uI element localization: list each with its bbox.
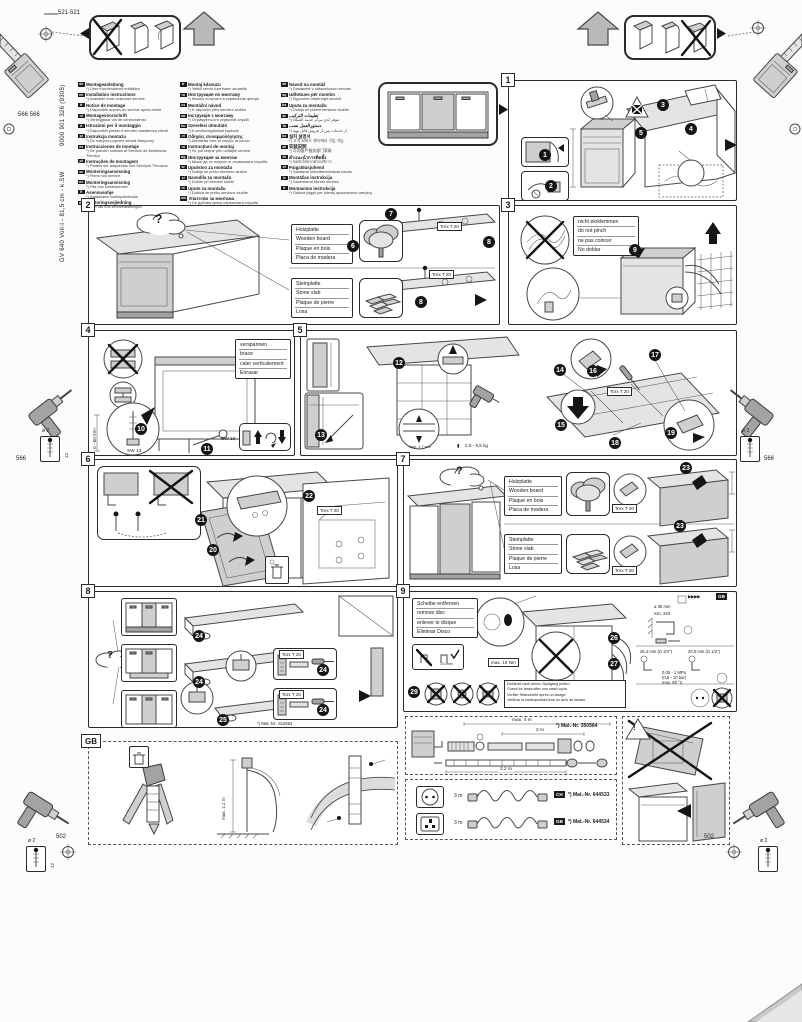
binding-hole-icon [788, 122, 802, 136]
drill-depth-label: 12 [64, 453, 69, 458]
language-code-badge: pl [78, 134, 85, 138]
panel-number: 1 [501, 73, 515, 87]
drill-diameter-label: ø 2 [42, 428, 49, 434]
flow-label: 10 l/min [440, 662, 453, 666]
language-note: *) Disponibili presso il servizio assist… [78, 129, 177, 133]
language-list-col1: deMontageanleitung *) Über Kundendienst … [78, 82, 177, 211]
panel-weight-icon: ▮ [457, 443, 460, 449]
step-badge: 27 [608, 658, 620, 670]
cord-length-label: 3 m [454, 820, 462, 826]
language-entry: slNavodila za montažo *) Dobite pri serv… [180, 175, 279, 184]
panel-weight-label: 2,5 - 6,5 kg [465, 443, 488, 448]
worktop-types-icon [91, 17, 179, 58]
cord-length-label: 3 m [454, 793, 462, 799]
language-code-badge: et [281, 165, 288, 169]
step-badge: 21 [195, 514, 207, 526]
question-mark: ? [456, 465, 463, 477]
step-panel-1: 1 [508, 80, 737, 201]
language-note: *) Се добива преку сервисната служба [180, 201, 279, 205]
step-panel-6: 6 [88, 459, 398, 587]
see-gb-arrows-icon: ▶▶▶▶ [688, 594, 700, 600]
step-badge: 6 [347, 240, 359, 252]
worktop-types-icon [626, 17, 714, 58]
language-code-badge: el [180, 134, 187, 138]
panel-number: 4 [81, 323, 95, 337]
language-code-badge: nl [78, 114, 85, 118]
language-code-badge: de [78, 82, 85, 86]
power-cord-icon [468, 813, 548, 835]
dim-502-right: 502 [704, 834, 714, 840]
up-arrow-icon [184, 12, 224, 46]
language-code-badge: sv [78, 170, 85, 174]
language-entry: mkУпатство за монтажа *) Се добива преку… [180, 196, 279, 205]
language-note: *) Über Kundendienst erhältlich [78, 87, 177, 91]
panel-number: 5 [293, 323, 307, 337]
target-mark-icon [726, 844, 742, 860]
door-mount-illustration [623, 717, 731, 846]
step-badge: 23 [674, 520, 686, 532]
step-panel-9: 9 [403, 591, 737, 712]
pointer-right-icon [499, 104, 508, 115]
kitchen-overview-figure [378, 82, 498, 146]
language-note: *) Отримується в сервісній службі [180, 118, 279, 122]
door-adjust-pictogram [239, 423, 291, 451]
torx-label: Torx T 20 [612, 566, 637, 575]
torx-label: Torx T 20 [279, 690, 304, 699]
step-badge: 20 [207, 544, 219, 556]
screw-bit-icon [40, 436, 60, 462]
language-note: *) تتوفر لدى مركز خدمة العملاء [281, 118, 380, 122]
language-code-badge: hu [180, 124, 187, 128]
wrench-size-label: SW 10 [221, 437, 235, 442]
pointer-left-icon [80, 28, 89, 39]
worktop-warning-box-left [89, 15, 181, 60]
step-badge: 29 [408, 686, 420, 698]
step-badge: 24 [317, 704, 329, 716]
language-code-badge: sl [180, 176, 187, 180]
language-entry: frNotice de montage *) Disponible auprès… [78, 103, 177, 112]
language-note: *) Podem ser adquiridas nos Serviços Téc… [78, 164, 177, 168]
step-badge: 8 [483, 236, 495, 248]
step-badge: 7 [385, 208, 397, 220]
language-code-badge: fr [78, 103, 85, 107]
language-list-col3: skNávod na montáž *) Dostanete v zákazní… [281, 82, 380, 196]
language-entry: etPaigaldusjuhend *) Saadaval klienditee… [281, 165, 380, 174]
remove-disc-label: Scheibe entfernenremove disc enlever le … [412, 598, 478, 638]
language-code-badge: no [78, 180, 85, 184]
gap-label: max. 1,7 mm [401, 445, 439, 449]
socket-gb-icon [416, 813, 444, 835]
language-note: *) ขอรับได้จากฝ่ายบริการ [281, 160, 380, 164]
language-note: *) Yetkili servis üzerinden alınabilir [180, 87, 279, 91]
wood-icon [359, 220, 403, 262]
brace-label: verspannenbrace caler verticalementEnras… [235, 339, 291, 379]
dim-top-left: 521-521 [58, 10, 80, 16]
language-code-badge: zh [281, 145, 288, 149]
torx-label: Torx T 20 [279, 650, 304, 659]
language-entry: plInstrukcja montażu *) Do nabycia poprz… [78, 134, 177, 143]
language-code-badge: uk [180, 114, 187, 118]
language-entry: thคำแนะนำการติดตั้ง *) ขอรับได้จากฝ่ายบร… [281, 155, 380, 164]
step-badge: 24 [317, 664, 329, 676]
dim-566-left: 566 [16, 456, 26, 462]
language-code-badge: ru [180, 93, 187, 97]
panel-number: 9 [396, 584, 410, 598]
material-number-hose: *) Mat.-Nr. 350564 [556, 723, 597, 729]
language-entry: elΟδηγίες συναρμολόγησης *) Διατίθεται α… [180, 134, 279, 143]
power-cord-box: 3 m CH *) Mat.-Nr. 644533 3 m GB *) Mat.… [405, 779, 617, 840]
language-entry: roInstrucţiuni de montaj *) Se pot obţin… [180, 144, 279, 153]
step-badge: 15 [555, 419, 567, 431]
language-entry: ltMontavimo instrukcija *) Galima įsigyt… [281, 186, 380, 195]
language-note: *) Sigurohet nëpërmjet servisit [281, 97, 380, 101]
temperature-label: max. 60 °C [662, 680, 683, 685]
material-number-plinth: *) Mat.-Nr.: 612663 [257, 721, 292, 726]
language-code-badge: ar [281, 114, 288, 118]
language-entry: hrUpute za montažu *) Dobiva se preko se… [180, 186, 279, 195]
step-badge: 13 [315, 429, 327, 441]
dim-566-pair: 566 566 [18, 112, 40, 118]
language-entry: esInstrucciones de montaje *) Se pueden … [78, 144, 177, 158]
plinth-variant-1 [121, 598, 177, 636]
language-code-badge: ro [180, 145, 187, 149]
drill-diameter-label: ø 2 [28, 838, 35, 844]
step-panel-3: 3 [508, 205, 737, 325]
language-code-badge: fa [281, 124, 288, 128]
language-note: *) Dobite pri servisni službi [180, 180, 279, 184]
wood-option-label: HolzplatteWooden board Plaque en boisPla… [291, 224, 353, 264]
step-badge: 17 [649, 349, 661, 361]
language-code-badge: bg [180, 155, 187, 159]
step-badge: 3 [657, 99, 669, 111]
language-note: *) Διατίθεται από το σέρβις πελατών [180, 139, 279, 143]
step-badge: 19 [665, 427, 677, 439]
torx-label: Torx T 20 [317, 506, 342, 515]
plinth-variant-3 [121, 690, 177, 728]
language-entry: ko설치 설명서 *) 고객 서비스 센터에서 구입 가능 [281, 134, 380, 143]
language-entry: svMonteringsanvisning *) Finns hos servi… [78, 169, 177, 178]
step-badge: 24 [193, 676, 205, 688]
warning-exclamation: ! [633, 723, 636, 732]
step-panel-5: 5 [300, 330, 737, 456]
tilted-dishwasher-sketch [4, 53, 49, 98]
language-entry: zh安装说明 *) 可向客户服务部门索取 [281, 144, 380, 153]
language-note: *) 고객 서비스 센터에서 구입 가능 [281, 139, 380, 143]
language-entry: bsUputa za montažu *) Dobija se putem se… [281, 103, 380, 112]
step-panel-4: 4 verspannenbrace caler verticale [88, 330, 295, 456]
cordless-drill-icon [728, 786, 788, 842]
screw-bit-icon [758, 846, 778, 872]
cordless-drill-icon [24, 382, 84, 438]
pointer-right-icon [717, 28, 726, 39]
step-badge: 18 [609, 437, 621, 449]
panel-number: 3 [501, 198, 515, 212]
language-entry: srUputstvo za montažu *) Dobija se preko… [180, 165, 279, 174]
screw-bit-icon [740, 436, 760, 462]
language-code-badge: es [78, 145, 85, 149]
step-badge: 26 [608, 632, 620, 644]
language-entry: deMontageanleitung *) Über Kundendienst … [78, 82, 177, 91]
up-arrow-icon [578, 12, 618, 46]
language-note: *) Verkrijgbaar via de servicedienst [78, 118, 177, 122]
language-note: *) 可向客户服务部门索取 [281, 149, 380, 153]
hose-extension-box: max. 4 m 2 m *) Mat.-Nr. 350564 2,2 m [405, 716, 617, 775]
language-entry: arتعليمات التركيب *) تتوفر لدى مركز خدمة… [281, 113, 380, 122]
language-entry: ukІнструкція з монтажу *) Отримується в … [180, 113, 279, 122]
dim-502-left: 502 [56, 834, 66, 840]
material-number-cord: *) Mat.-Nr. 644533 [568, 792, 609, 798]
language-code-badge: tr [180, 82, 187, 86]
language-note: *) Saadaval klienditeeninduse kaudu [281, 170, 380, 174]
language-entry: noMonteringsanvisning *) Fås hos kundese… [78, 180, 177, 189]
panel-number: 8 [81, 584, 95, 598]
language-note: *) A vevőszolgálatnál kapható [180, 129, 279, 133]
language-entry: skNávod na montáž *) Dostanete v zákazní… [281, 82, 380, 91]
language-note: *) K dispozici přes servisní službu [180, 108, 279, 112]
language-code-badge: lv [281, 176, 288, 180]
language-note: *) Available from customer service [78, 97, 177, 101]
step-badge: 23 [680, 462, 692, 474]
hose-22m-length: 2,2 m [498, 767, 514, 772]
language-entry: itIstruzioni per il montaggio *) Disponi… [78, 123, 177, 132]
language-code-badge: sr [180, 165, 187, 169]
worktop-warning-box-right [624, 15, 716, 60]
language-entry: csMontážní návod *) K dispozici přes ser… [180, 103, 279, 112]
language-note: *) Saņemama klientu servisā [281, 180, 380, 184]
step-badge: 14 [554, 364, 566, 376]
language-note: *) Fås hos kundeservice [78, 185, 177, 189]
country-badge: CH [554, 791, 565, 798]
language-code-badge: bs [281, 103, 288, 107]
language-note: *) Може да се получи от сервизната служб… [180, 160, 279, 164]
manual-page: 521-521 [0, 0, 802, 1022]
wood-icon [566, 472, 610, 516]
tool-usage-pictogram [412, 644, 464, 670]
plinth-variant-2 [121, 644, 177, 682]
material-number-cord: *) Mat.-Nr. 644534 [568, 819, 609, 825]
dispose-icon [265, 556, 289, 584]
torx-label: Torx T 20 [429, 270, 454, 279]
question-mark: ? [155, 212, 162, 226]
step-badge: 8 [415, 296, 427, 308]
step-panel-2: 2 ? HolzplatteWood [88, 205, 500, 325]
drill-diameter-label: ø 2 [760, 838, 767, 844]
question-mark: ? [107, 650, 113, 661]
language-entry: bgИнструкция за монтаж *) Може да се пол… [180, 155, 279, 164]
dim-566-right: 566 [764, 456, 774, 462]
language-note: *) از خدمات پس از فروش قابل تهیه [281, 129, 380, 133]
language-code-badge: ko [281, 134, 288, 138]
stone-option-label: SteinplatteStone slab Plaque de pierreLo… [291, 278, 353, 318]
torx-label: Torx T 20 [607, 387, 632, 396]
language-code-badge: hr [180, 186, 187, 190]
language-entry: trMontaj kılavuzu *) Yetkili servis üzer… [180, 82, 279, 91]
torx-label: Torx T 20 [612, 504, 637, 513]
step-badge: 4 [685, 123, 697, 135]
language-entry: lvMontāžas instrukcija *) Saņemama klien… [281, 175, 380, 184]
socket-ch-icon [416, 786, 444, 808]
language-note: *) Galima įsigyti per klientų aptarnavim… [281, 191, 380, 195]
language-entry: enInstallation instructions *) Available… [78, 92, 177, 101]
panel-number: 7 [396, 452, 410, 466]
page-curl [748, 984, 802, 1022]
drain-height-label: min. 240 [654, 611, 670, 616]
drain-diameter-label: ø 35 mm [654, 604, 671, 609]
corner-ruler-left [0, 24, 50, 116]
language-entry: ruИнструкция по монтажу *) Можно получит… [180, 92, 279, 101]
panel6-inset-hooks [97, 466, 201, 540]
step-badge: 16 [587, 365, 599, 377]
doc-number-vertical: 9000 901 326 (9305) [60, 85, 66, 146]
model-vertical: GV 640 Voll-I - 81,5 cm - k.SW [60, 171, 66, 262]
connection-size-label: 20,0 mm (G 1/2") [688, 649, 720, 654]
gb-badge: GB [716, 593, 727, 600]
step-badge: 5 [635, 127, 647, 139]
connection-size-label: 26,4 mm (G 3/4") [640, 649, 672, 654]
country-badge: GB [554, 818, 565, 825]
language-note: *) Dobiva se preko servisne službe [180, 191, 279, 195]
step-badge: 24 [193, 630, 205, 642]
standpipe-height-label: max. 1,1 m [221, 797, 226, 820]
language-note: *) Do nabycia poprzez serwis fabryczny [78, 139, 177, 143]
torx-label: Torx T 20 [437, 222, 462, 231]
door-mount-warning-box: ! [622, 716, 730, 845]
target-mark-icon [2, 122, 16, 136]
gb-panel-label: GB [81, 734, 101, 748]
screw-bit-icon [26, 846, 46, 872]
language-entry: ptInstruções de montagem *) Podem ser ad… [78, 159, 177, 168]
language-code-badge: sq [281, 93, 288, 97]
language-code-badge: mk [180, 196, 187, 200]
language-list-col2: trMontaj kılavuzu *) Yetkili servis üzer… [180, 82, 279, 206]
step-badge: 1 [539, 149, 551, 161]
gb-drain-panel: GB max. [88, 741, 398, 845]
language-code-badge: th [281, 155, 288, 159]
language-entry: nlMontagevoorschrift *) Verkrijgbaar via… [78, 113, 177, 122]
language-code-badge: cs [180, 103, 187, 107]
language-note: *) Dobija se putem servisne službe [281, 108, 380, 112]
language-entry: sqUdhëzues për montim *) Sigurohet nëpër… [281, 92, 380, 101]
panel-number: 6 [81, 452, 95, 466]
language-code-badge: pt [78, 159, 85, 163]
step-badge: 11 [201, 443, 213, 455]
language-note: *) Se pot obţine prin unităţile service [180, 149, 279, 153]
step-badge: 2 [545, 180, 557, 192]
language-code-badge: sk [281, 82, 288, 86]
language-note: *) Disponible auprès du service après-ve… [78, 108, 177, 112]
torque-label: max. 10 Nm [488, 658, 519, 667]
wood-option-label: HolzplatteWooden board Plaque en boisPla… [504, 476, 562, 516]
step-panel-8: 8 ? [88, 591, 398, 728]
height-range-label: 0 - 60 mm [92, 428, 97, 449]
step-panel-7: 7 [403, 459, 737, 587]
kitchen-cabinets-icon [380, 84, 496, 144]
language-note: *) Dostanete v zákazníckom servise [281, 87, 380, 91]
stone-option-label: SteinplatteStone slab Plaque de pierreLo… [504, 534, 562, 574]
dispose-icon [129, 746, 149, 768]
language-note: *) Можно получить в сервисном центре [180, 97, 279, 101]
language-code-badge: lt [281, 186, 288, 190]
language-code-badge: fi [78, 190, 85, 194]
hose-max-length: max. 4 m [510, 718, 534, 723]
drill-depth-label: 12 [50, 863, 55, 868]
drill-diameter-label: ø 2 [742, 428, 749, 434]
target-mark-icon [60, 844, 76, 860]
hose-2m-length: 2 m [534, 728, 546, 733]
language-note: *) Finns hos service [78, 174, 177, 178]
power-cord-icon [468, 786, 548, 808]
step-badge: 22 [303, 490, 315, 502]
panel-number: 2 [81, 198, 95, 212]
language-entry: huSzerelési útmutató *) A vevőszolgálatn… [180, 123, 279, 132]
corner-ruler-right [752, 24, 802, 116]
stone-icon [359, 278, 403, 318]
language-code-badge: it [78, 124, 85, 128]
language-note: *) Se pueden solicitar al Servicio de As… [78, 149, 177, 158]
language-entry: faدستورالعمل نصب *) از خدمات پس از فروش … [281, 123, 380, 132]
leak-check-note: Dichtheit nach einem Spülgang prüfen.Che… [504, 680, 626, 708]
step-badge: 9 [629, 244, 641, 256]
step-badge: 12 [393, 357, 405, 369]
stone-icon [566, 534, 610, 574]
language-note: *) Dobija se preko servisne službe [180, 170, 279, 174]
step-badge: 10 [135, 423, 147, 435]
language-code-badge: en [78, 93, 85, 97]
step-badge: 25 [217, 714, 229, 726]
wrench-size-label: SW 13 [127, 449, 141, 454]
